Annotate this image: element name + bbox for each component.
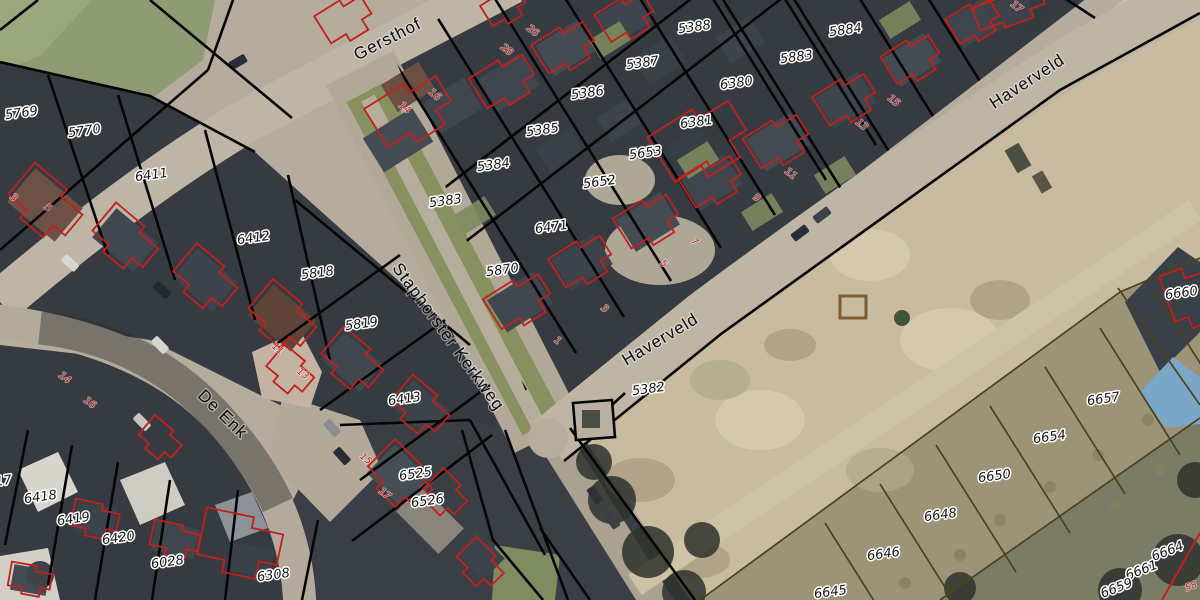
- aerial-cadastral-map[interactable]: 5769577064116412581858196413587053835384…: [0, 0, 1200, 600]
- parcel-5382-shed: [582, 410, 600, 428]
- shrub: [1154, 464, 1166, 476]
- sand-texture: [690, 360, 750, 400]
- sand-texture: [764, 329, 816, 361]
- playground-item: [894, 310, 910, 326]
- shrub: [994, 514, 1006, 526]
- shrub: [1142, 414, 1154, 426]
- map-canvas[interactable]: 5769577064116412581858196413587053835384…: [0, 0, 1200, 600]
- shrub: [1044, 481, 1056, 493]
- shrub: [1109, 499, 1121, 511]
- shrub: [954, 549, 966, 561]
- tree: [684, 522, 720, 558]
- junction-pad: [528, 418, 568, 458]
- shrub: [899, 577, 911, 589]
